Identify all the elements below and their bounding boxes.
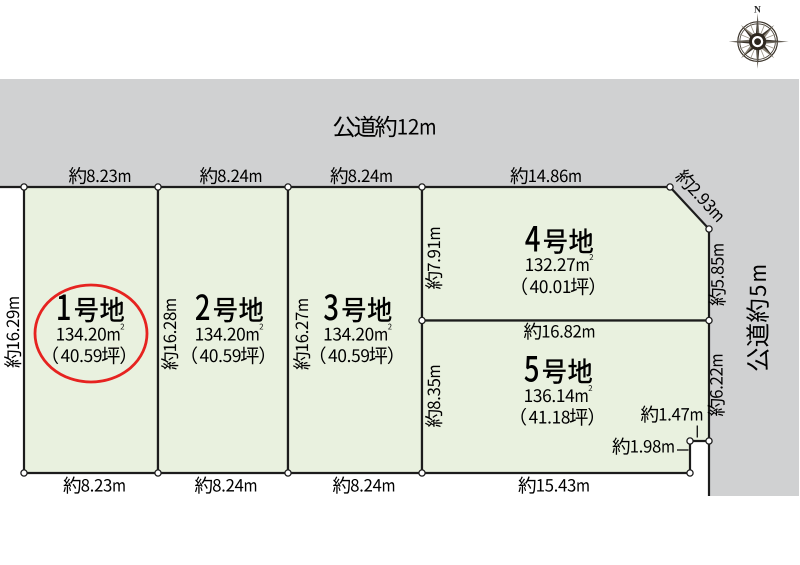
svg-text:N: N	[754, 6, 761, 16]
